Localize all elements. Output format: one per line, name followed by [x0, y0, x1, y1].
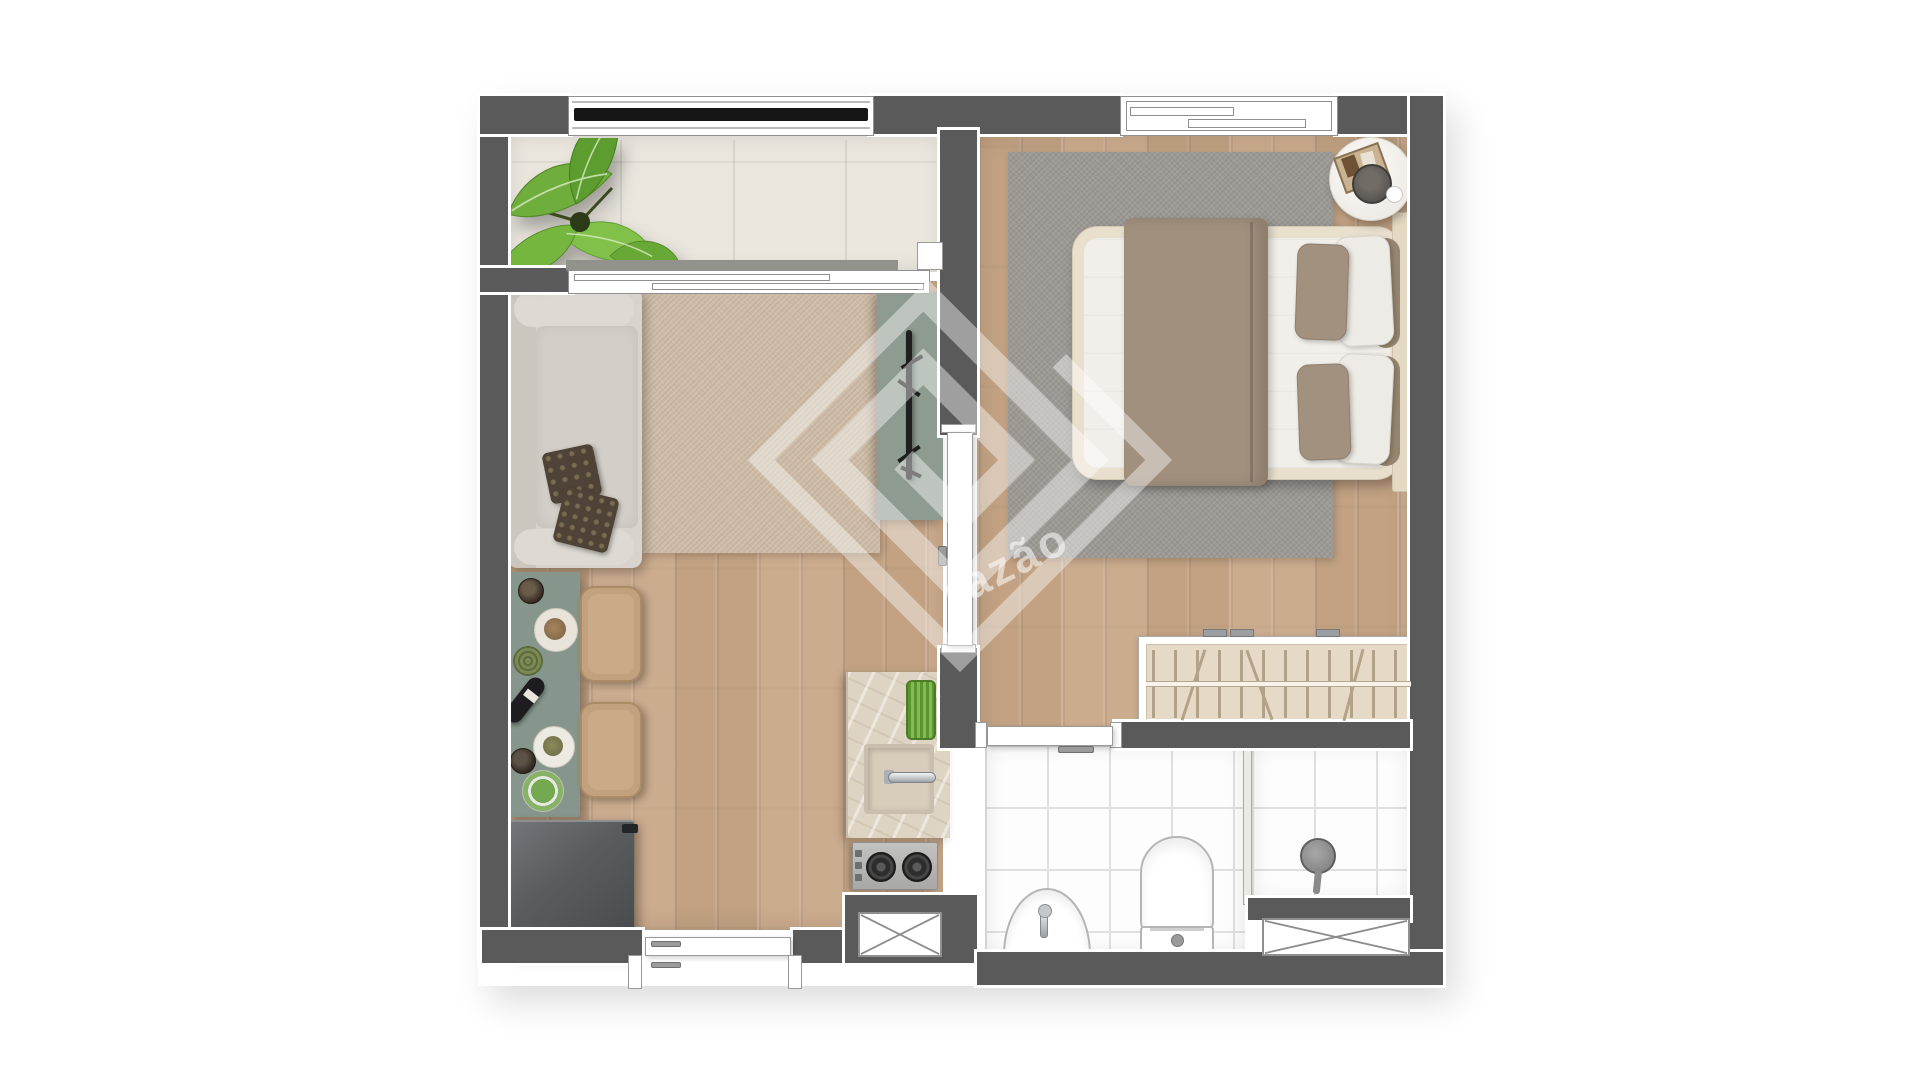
table-plant: [522, 770, 564, 812]
bed-pillow-taupe: [1294, 243, 1349, 341]
coffee-cup: [510, 748, 536, 774]
wall-shower-bottom: [1248, 898, 1410, 920]
balcony-floor-seam: [845, 140, 847, 266]
wall-top-middle: [870, 96, 1120, 134]
green-bowl: [513, 646, 543, 676]
balcony-railing-line: [572, 127, 870, 129]
toilet-flush-button: [1171, 934, 1184, 947]
wall-left: [480, 96, 508, 963]
cooktop-burner: [902, 852, 932, 882]
kitchen-faucet: [888, 772, 936, 783]
cooktop-burner: [866, 852, 896, 882]
wall-top-left: [480, 96, 570, 134]
bedroom-window-sash: [1130, 107, 1234, 116]
sink-faucet-base: [1038, 904, 1052, 918]
bed-blanket: [1124, 218, 1268, 486]
bedroom-window-sash: [1188, 119, 1306, 128]
balcony-railing-line: [572, 101, 870, 103]
toilet-seat-hinge: [1150, 928, 1204, 931]
wardrobe-handle-tab: [1316, 629, 1340, 637]
balcony-floor-seam: [733, 140, 735, 266]
wall-balcony-stub: [480, 268, 572, 292]
sliding-door-panel: [652, 283, 924, 290]
bathroom-door: [987, 726, 1113, 746]
dish-rack: [906, 680, 936, 740]
bathroom-door-handle: [1058, 746, 1094, 753]
entrance-door-jamb: [628, 955, 642, 989]
wall-divider-lower: [940, 648, 977, 748]
bedroom-door: [947, 432, 973, 646]
blanket-fold-line: [1250, 222, 1253, 482]
cooktop-knob: [855, 862, 862, 869]
bed-pillow-taupe: [1296, 363, 1351, 461]
shower-floor: [1252, 745, 1410, 902]
side-table-cup: [1386, 186, 1403, 203]
wall-bathroom-bottom: [977, 952, 1443, 985]
bedroom-door-handle: [938, 546, 947, 566]
plate-food: [543, 736, 563, 756]
wall-bathroom-top: [1115, 722, 1410, 748]
kitchen-service-duct: [858, 912, 942, 957]
plate-food: [544, 618, 566, 640]
sliding-door-panel: [574, 274, 830, 281]
sofa-armrest: [514, 291, 634, 327]
wardrobe-rail: [1146, 681, 1411, 687]
bathroom-door-jamb: [975, 722, 987, 748]
toilet-bowl: [1140, 836, 1214, 934]
wall-bottom-left: [482, 930, 642, 963]
coffee-cup: [518, 578, 544, 604]
entrance-door-jamb: [788, 955, 802, 989]
balcony-corner-niche: [917, 242, 943, 270]
bathroom-service-duct: [1262, 918, 1410, 956]
wall-right: [1410, 96, 1443, 985]
floor-plan-page: razão: [0, 0, 1920, 1080]
living-room-rug: [640, 285, 880, 553]
sofa-backrest: [508, 288, 536, 568]
entrance-door-handle-inside: [651, 941, 681, 947]
wardrobe-handle-tab: [1230, 629, 1254, 637]
wall-divider-upper: [940, 130, 977, 435]
balcony-railing-bar: [574, 108, 868, 121]
cooktop-knob: [855, 874, 862, 881]
dining-chair-seat: [588, 710, 634, 790]
refrigerator-handle: [622, 824, 638, 833]
entrance-door-handle-outside: [651, 962, 681, 968]
cooktop-knob: [855, 850, 862, 857]
shower-partition: [1243, 745, 1252, 905]
wardrobe-handle-tab: [1203, 629, 1227, 637]
dining-chair-seat: [588, 594, 634, 674]
